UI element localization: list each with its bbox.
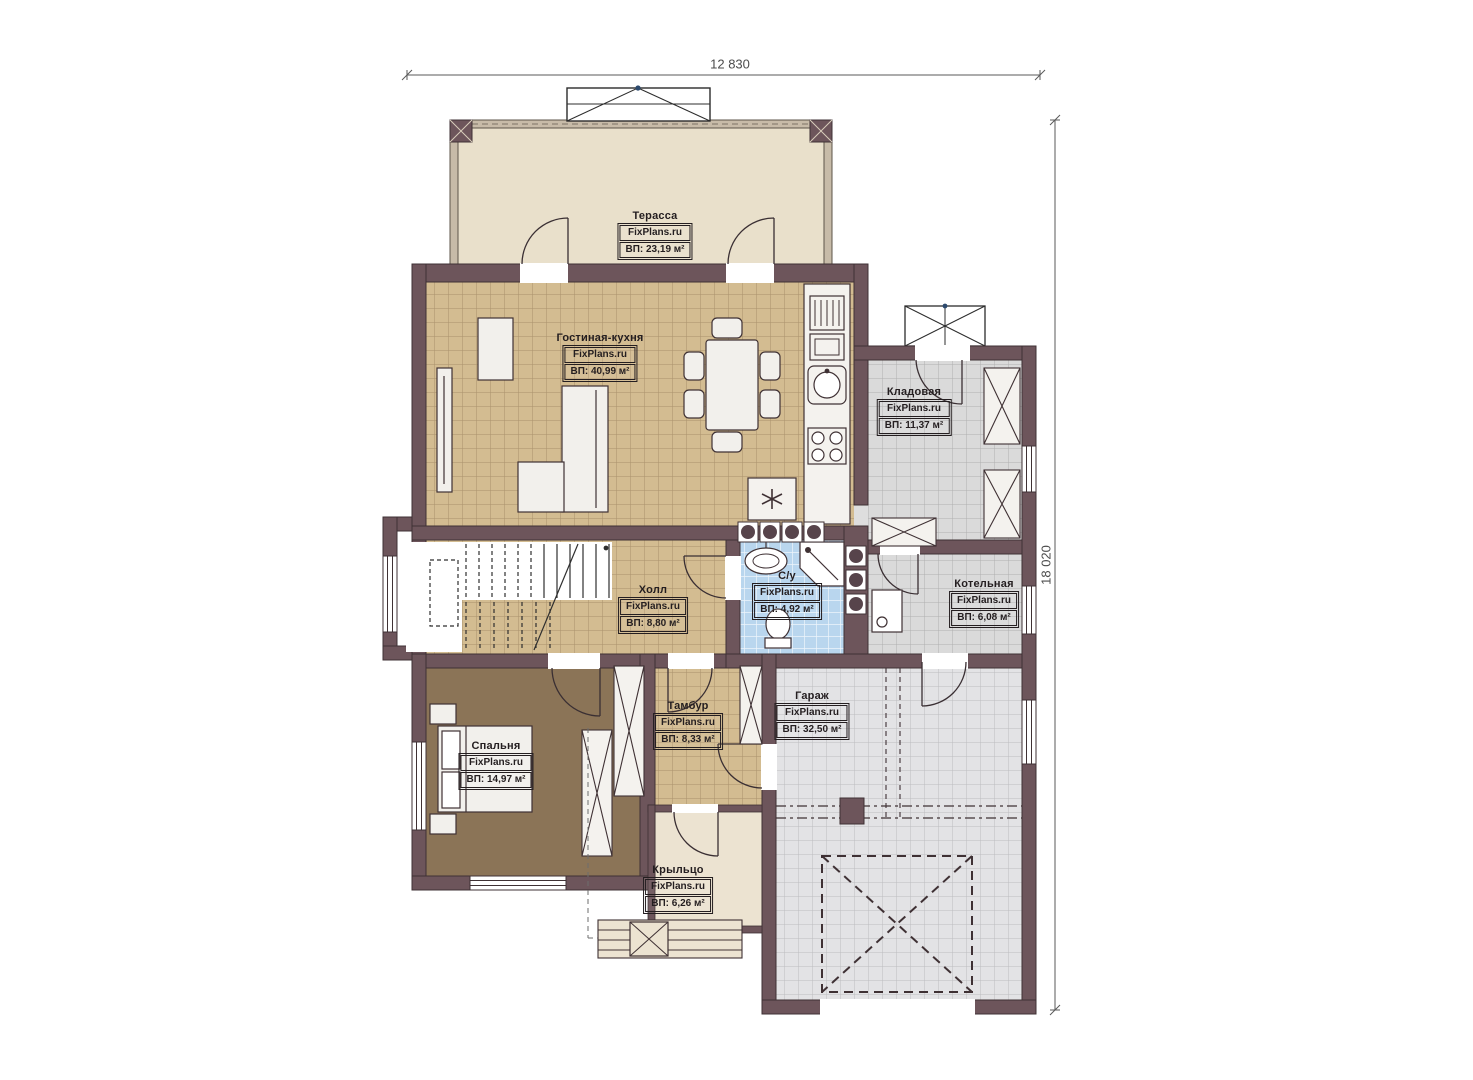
room-brand: FixPlans.ru [460,755,531,771]
room-name: Спальня [458,740,533,752]
room-area: ВП: 11,37 м² [879,418,950,434]
room-info-box: FixPlans.ru ВП: 8,80 м² [618,597,688,634]
room-label-bedroom: Спальня FixPlans.ru ВП: 14,97 м² [458,740,533,790]
boiler-equipment [872,590,902,632]
room-brand: FixPlans.ru [879,401,950,417]
room-label-bathroom: С/у FixPlans.ru ВП: 4,92 м² [752,570,822,620]
room-name: Кладовая [877,386,952,398]
room-brand: FixPlans.ru [645,879,711,895]
room-name: С/у [752,570,822,582]
room-label-storage: Кладовая FixPlans.ru ВП: 11,37 м² [877,386,952,436]
room-name: Котельная [949,578,1019,590]
room-brand: FixPlans.ru [619,225,690,241]
room-area: ВП: 40,99 м² [564,364,635,380]
room-info-box: FixPlans.ru ВП: 8,33 м² [653,713,723,750]
room-area: ВП: 6,08 м² [951,610,1017,626]
room-label-boiler: Котельная FixPlans.ru ВП: 6,08 м² [949,578,1019,628]
room-info-box: FixPlans.ru ВП: 40,99 м² [562,345,637,382]
room-label-porch: Крыльцо FixPlans.ru ВП: 6,26 м² [643,864,713,914]
room-info-box: FixPlans.ru ВП: 11,37 м² [877,399,952,436]
dimension-height-label: 18 020 [1039,545,1054,585]
room-area: ВП: 8,80 м² [620,616,686,632]
room-info-box: FixPlans.ru ВП: 6,08 м² [949,591,1019,628]
room-name: Крыльцо [643,864,713,876]
room-brand: FixPlans.ru [754,585,820,601]
room-label-hall: Холл FixPlans.ru ВП: 8,80 м² [618,584,688,634]
room-area: ВП: 23,19 м² [619,242,690,258]
floor-plan-page: 12 830 18 020 Терасса FixPlans.ru ВП: 23… [0,0,1473,1080]
room-brand: FixPlans.ru [620,599,686,615]
room-brand: FixPlans.ru [655,715,721,731]
room-name: Холл [618,584,688,596]
room-area: ВП: 8,33 м² [655,732,721,748]
room-brand: FixPlans.ru [564,347,635,363]
fridge-coil [810,296,844,330]
island-unit [748,478,796,520]
room-info-box: FixPlans.ru ВП: 23,19 м² [617,223,692,260]
room-label-vestibule: Тамбур FixPlans.ru ВП: 8,33 м² [653,700,723,750]
room-label-living-kitchen: Гостиная-кухня FixPlans.ru ВП: 40,99 м² [556,332,643,382]
room-label-garage: Гараж FixPlans.ru ВП: 32,50 м² [774,690,849,740]
terrace-entry-steps [567,85,710,121]
dimension-width-label: 12 830 [710,57,750,72]
room-area: ВП: 32,50 м² [776,722,847,738]
room-area: ВП: 4,92 м² [754,602,820,618]
room-area: ВП: 14,97 м² [460,772,531,788]
room-info-box: FixPlans.ru ВП: 32,50 м² [774,703,849,740]
room-info-box: FixPlans.ru ВП: 14,97 м² [458,753,533,790]
room-info-box: FixPlans.ru ВП: 4,92 м² [752,583,822,620]
room-name: Гараж [774,690,849,702]
room-brand: FixPlans.ru [776,705,847,721]
room-name: Тамбур [653,700,723,712]
room-brand: FixPlans.ru [951,593,1017,609]
oven [810,334,844,360]
room-name: Терасса [617,210,692,222]
room-area: ВП: 6,26 м² [645,896,711,912]
room-info-box: FixPlans.ru ВП: 6,26 м² [643,877,713,914]
room-label-terrace: Терасса FixPlans.ru ВП: 23,19 м² [617,210,692,260]
storage-entry-steps [905,304,985,346]
room-name: Гостиная-кухня [556,332,643,344]
floor-plan-drawing [0,0,1473,1080]
